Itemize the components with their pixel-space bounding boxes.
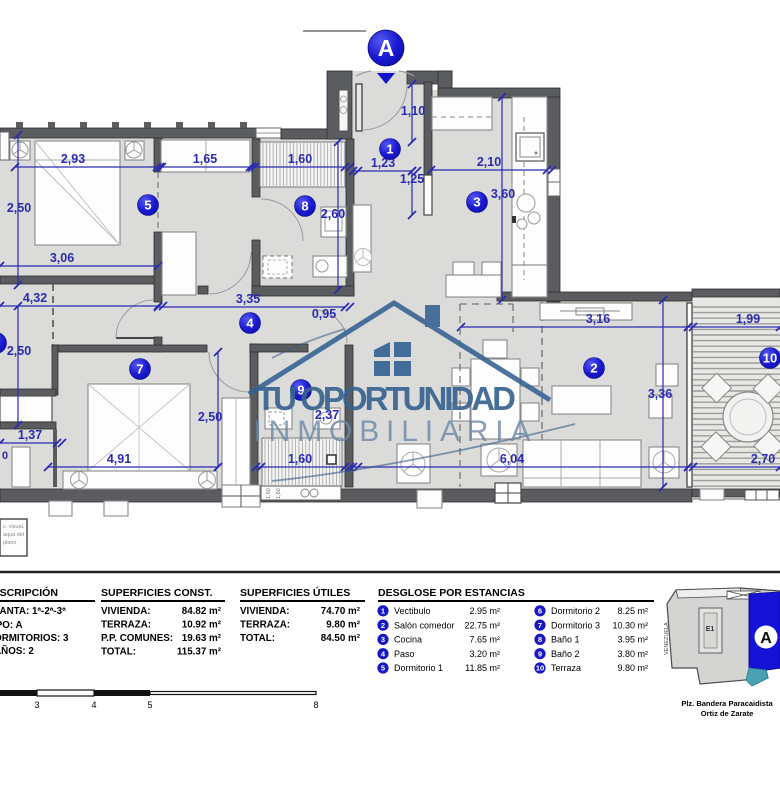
svg-text:2: 2	[590, 361, 597, 376]
svg-text:3,35: 3,35	[236, 292, 260, 306]
svg-text:10.92 m²: 10.92 m²	[182, 620, 222, 631]
svg-text:4: 4	[246, 316, 254, 331]
svg-text:DORMITORIOS: 3: DORMITORIOS: 3	[0, 633, 69, 644]
svg-text:9: 9	[538, 649, 542, 658]
svg-text:9.80 m²: 9.80 m²	[617, 663, 648, 673]
svg-text:9.80 m²: 9.80 m²	[326, 620, 361, 631]
svg-text:2,93: 2,93	[61, 152, 85, 166]
svg-text:2,10: 2,10	[477, 155, 501, 169]
svg-text:3,06: 3,06	[50, 251, 74, 265]
svg-text:4,91: 4,91	[107, 452, 131, 466]
svg-text:5: 5	[381, 664, 385, 673]
svg-text:7: 7	[136, 362, 143, 377]
svg-text:74.70 m²: 74.70 m²	[321, 606, 361, 617]
svg-text:3.80 m²: 3.80 m²	[617, 649, 648, 659]
svg-text:3.95 m²: 3.95 m²	[617, 635, 648, 645]
svg-text:115.37 m²: 115.37 m²	[177, 647, 222, 658]
svg-text:1,60: 1,60	[288, 152, 312, 166]
svg-text:Dormitorio 2: Dormitorio 2	[551, 606, 600, 616]
svg-text:1,60: 1,60	[288, 452, 312, 466]
svg-text:Cocina: Cocina	[394, 635, 422, 645]
svg-text:10.30 m²: 10.30 m²	[612, 620, 648, 630]
svg-text:1,60: 1,60	[276, 488, 282, 499]
svg-text:3,36: 3,36	[648, 387, 672, 401]
svg-text:10: 10	[536, 664, 544, 673]
svg-text:22.75 m²: 22.75 m²	[464, 620, 500, 630]
svg-text:DESGLOSE POR ESTANCIAS: DESGLOSE POR ESTANCIAS	[378, 587, 525, 599]
svg-text:1,60: 1,60	[266, 488, 272, 499]
svg-text:aqua del: aqua del	[3, 532, 24, 538]
svg-text:Vectibulo: Vectibulo	[394, 606, 431, 616]
svg-text:Baño 1: Baño 1	[551, 635, 580, 645]
svg-text:Baño 2: Baño 2	[551, 649, 580, 659]
svg-text:A: A	[378, 35, 395, 61]
svg-text:2: 2	[381, 621, 385, 630]
svg-text:3: 3	[34, 700, 39, 710]
svg-text:VENEZUELA: VENEZUELA	[664, 622, 670, 655]
svg-text:1,10: 1,10	[401, 104, 425, 118]
svg-text:19.63 m²: 19.63 m²	[182, 633, 222, 644]
svg-text:A: A	[760, 630, 772, 647]
svg-text:7.65 m²: 7.65 m²	[469, 635, 500, 645]
svg-text:8: 8	[313, 700, 318, 710]
svg-text:VIVIENDA:: VIVIENDA:	[101, 606, 151, 617]
svg-text:E1: E1	[706, 626, 715, 633]
svg-text:1,65: 1,65	[193, 152, 217, 166]
svg-text:3,16: 3,16	[586, 312, 610, 326]
svg-text:1: 1	[381, 607, 385, 616]
svg-text:2,50: 2,50	[198, 410, 222, 424]
svg-text:8.25 m²: 8.25 m²	[617, 606, 648, 616]
svg-text:TOTAL:: TOTAL:	[240, 633, 275, 644]
svg-text:8: 8	[538, 635, 542, 644]
svg-text:SUPERFICIES CONST.: SUPERFICIES CONST.	[101, 587, 213, 599]
svg-text:6: 6	[538, 607, 542, 616]
svg-text:7: 7	[538, 621, 542, 630]
svg-text:Plz. Bandera Paracaidista: Plz. Bandera Paracaidista	[681, 699, 773, 708]
svg-text:PLANTA: 1ª-2ª-3ª: PLANTA: 1ª-2ª-3ª	[0, 606, 66, 617]
svg-text:5: 5	[147, 700, 152, 710]
svg-text:BAÑOS: 2: BAÑOS: 2	[0, 646, 34, 657]
svg-text:3.20 m²: 3.20 m²	[469, 649, 500, 659]
svg-text:2,60: 2,60	[321, 207, 345, 221]
svg-text:TERRAZA:: TERRAZA:	[101, 620, 151, 631]
svg-text:DESCRIPCIÓN: DESCRIPCIÓN	[0, 586, 58, 599]
svg-text:1: 1	[386, 142, 393, 157]
svg-text:1,99: 1,99	[736, 312, 760, 326]
svg-text:c. visual,: c. visual,	[3, 524, 25, 530]
svg-text:3: 3	[473, 195, 480, 210]
svg-text:8: 8	[301, 199, 308, 214]
svg-text:3,60: 3,60	[491, 187, 515, 201]
svg-text:TU OPORTUNIDAD: TU OPORTUNIDAD	[256, 380, 516, 417]
svg-text:2,50: 2,50	[7, 344, 31, 358]
svg-text:Dormitorio 3: Dormitorio 3	[551, 620, 600, 630]
svg-text:SUPERFICIES ÚTILES: SUPERFICIES ÚTILES	[240, 586, 350, 599]
svg-text:84.82 m²: 84.82 m²	[182, 606, 222, 617]
svg-text:11.85 m²: 11.85 m²	[465, 663, 500, 673]
svg-text:Ortiz de Zarate: Ortiz de Zarate	[701, 709, 754, 718]
svg-text:2,50: 2,50	[7, 201, 31, 215]
svg-text:plano: plano	[3, 540, 16, 546]
svg-text:84.50 m²: 84.50 m²	[321, 633, 361, 644]
svg-text:TERRAZA:: TERRAZA:	[240, 620, 290, 631]
svg-text:0,95: 0,95	[312, 307, 336, 321]
svg-text:1,25: 1,25	[400, 172, 424, 186]
svg-text:4: 4	[91, 700, 96, 710]
svg-text:2,70: 2,70	[751, 452, 775, 466]
svg-text:P.P. COMUNES:: P.P. COMUNES:	[101, 633, 173, 644]
svg-text:Paso: Paso	[394, 649, 415, 659]
svg-text:3: 3	[381, 635, 385, 644]
svg-text:6,04: 6,04	[500, 452, 524, 466]
svg-text:5: 5	[144, 198, 151, 213]
svg-text:10: 10	[763, 351, 777, 366]
svg-text:1,37: 1,37	[18, 428, 42, 442]
svg-text:VIVIENDA:: VIVIENDA:	[240, 606, 290, 617]
svg-text:TIPO: A: TIPO: A	[0, 620, 23, 631]
svg-text:Dormitorio 1: Dormitorio 1	[394, 663, 443, 673]
svg-text:Terraza: Terraza	[551, 663, 581, 673]
svg-text:4,32: 4,32	[23, 291, 47, 305]
svg-text:2.95 m²: 2.95 m²	[469, 606, 500, 616]
svg-text:Salón comedor: Salón comedor	[394, 620, 455, 630]
svg-text:0: 0	[2, 450, 8, 462]
svg-text:TOTAL:: TOTAL:	[101, 647, 136, 658]
